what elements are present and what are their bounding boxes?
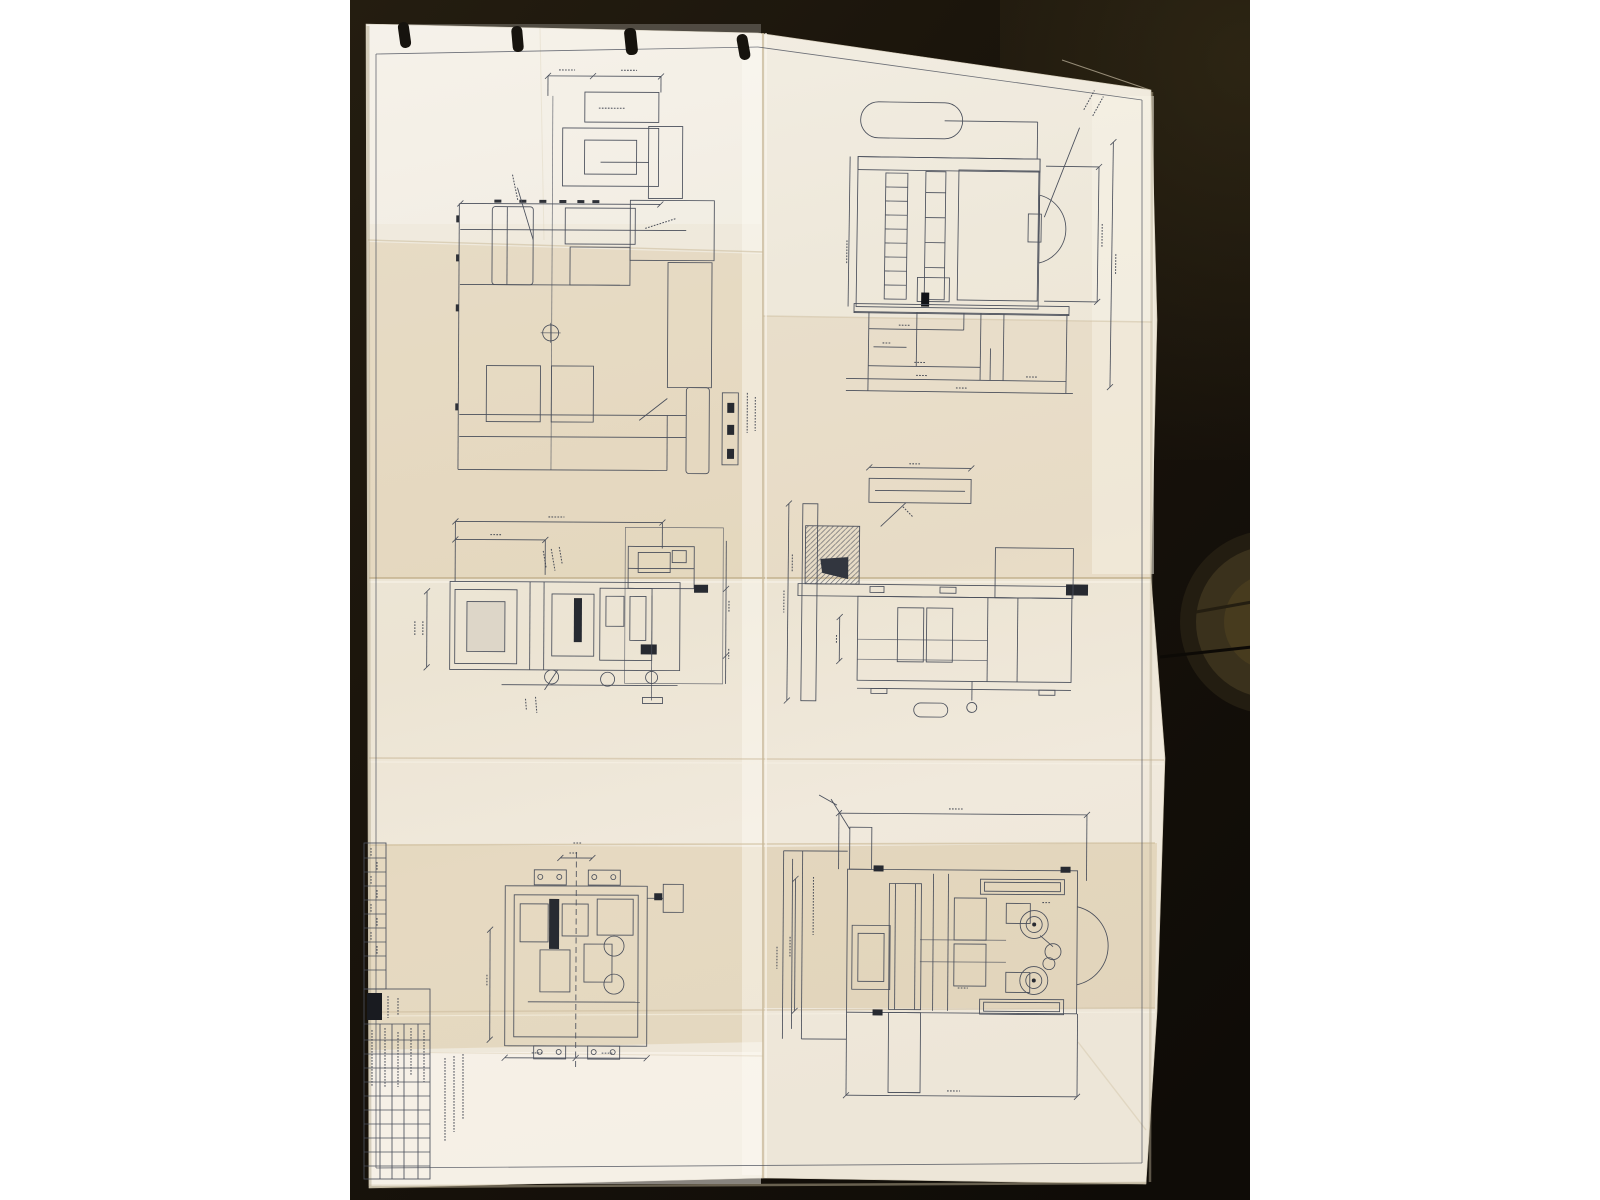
blueprint-photo-canvas (0, 0, 1600, 1200)
photo-of-technical-drawing (0, 0, 1600, 1200)
